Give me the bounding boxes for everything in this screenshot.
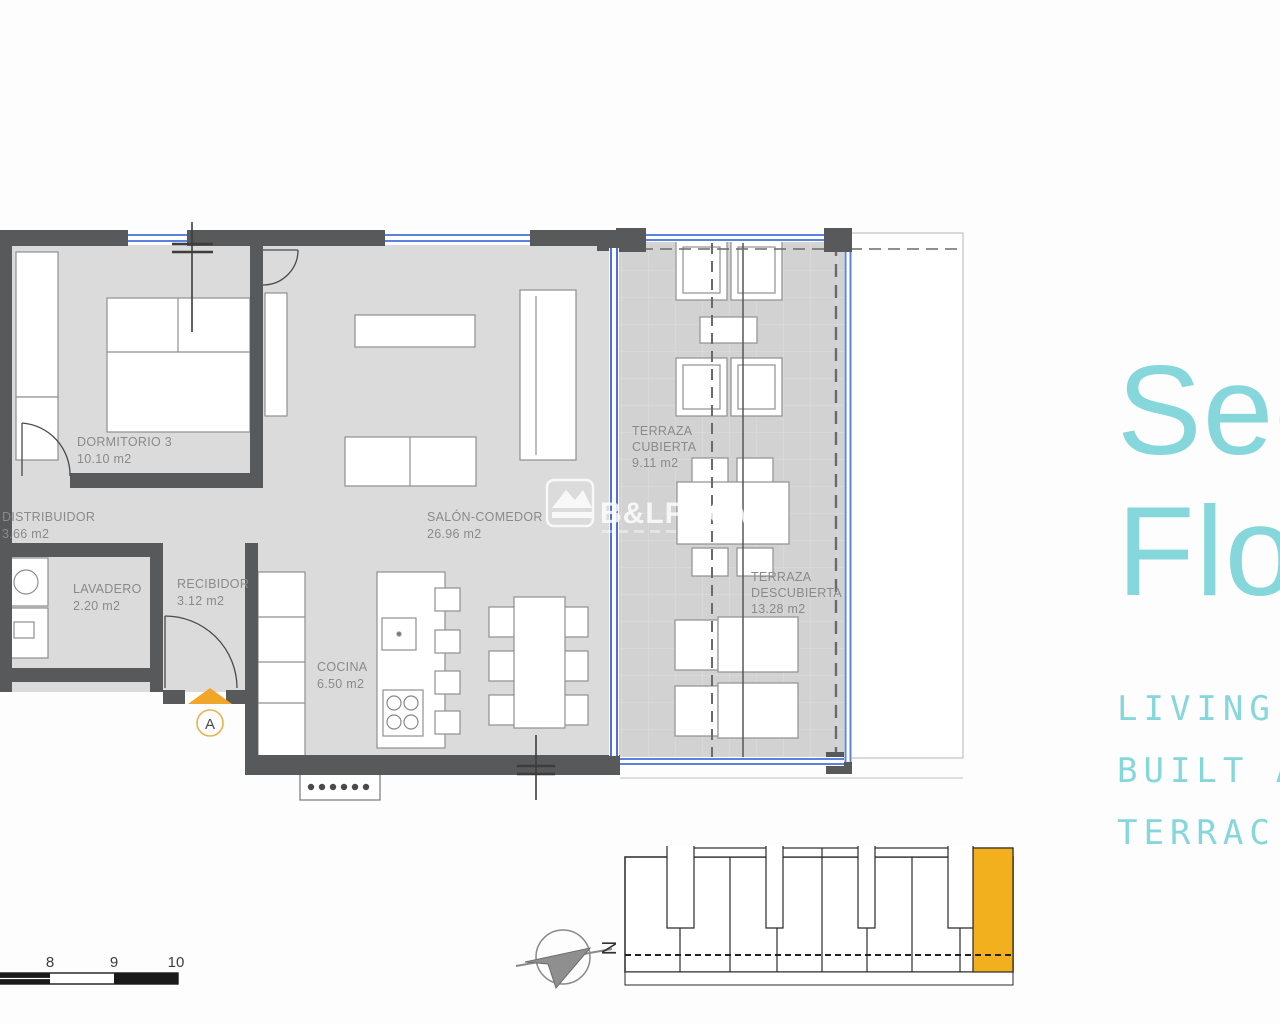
svg-text:TERRAZA: TERRAZA (632, 424, 693, 438)
key-plan (625, 846, 1013, 985)
svg-text:RECIBIDOR: RECIBIDOR (177, 577, 249, 591)
svg-text:26.96 m2: 26.96 m2 (427, 527, 482, 541)
svg-text:LAVADERO: LAVADERO (73, 582, 142, 596)
entrance-marker: A (188, 688, 232, 736)
floor-title-line-1: Sec (1117, 340, 1280, 481)
marketing-panel: Sec Flo LIVING BUILT A TERRAC (1117, 340, 1280, 622)
dining-set (489, 597, 588, 728)
entry-step (300, 774, 380, 800)
console-table (355, 315, 475, 347)
svg-text:6.50 m2: 6.50 m2 (317, 677, 364, 691)
svg-text:9.11 m2: 9.11 m2 (632, 456, 678, 470)
svg-text:8: 8 (46, 954, 54, 971)
highlighted-unit (973, 848, 1013, 972)
svg-text:CUBIERTA: CUBIERTA (632, 440, 697, 454)
svg-text:B&LPROMO: B&LPROMO (600, 497, 783, 530)
svg-text:SALÓN-COMEDOR: SALÓN-COMEDOR (427, 509, 543, 524)
svg-text:9: 9 (110, 954, 118, 971)
floor-caption: LIVING BUILT A TERRAC (1117, 678, 1280, 864)
floor-title-line-2: Flo (1117, 481, 1280, 622)
caption-line-terrace: TERRAC (1117, 802, 1280, 864)
svg-text:10.10 m2: 10.10 m2 (77, 452, 132, 466)
caption-line-built: BUILT A (1117, 740, 1280, 802)
svg-text:3.66 m2: 3.66 m2 (2, 527, 49, 541)
coffee-table (345, 437, 476, 486)
bed (107, 298, 250, 432)
svg-text:TERRAZA: TERRAZA (751, 570, 812, 584)
floor-title: Sec Flo (1117, 340, 1280, 622)
kitchen-counter (258, 572, 305, 762)
floor-plan: DORMITORIO 3 10.10 m2 DISTRIBUIDOR 3.66 … (0, 0, 1015, 1024)
svg-text:DORMITORIO 3: DORMITORIO 3 (77, 435, 172, 449)
floorplan-page: DORMITORIO 3 10.10 m2 DISTRIBUIDOR 3.66 … (0, 0, 1280, 1024)
scale-bar: 8 9 10 (0, 954, 184, 984)
svg-text:10: 10 (168, 954, 185, 971)
svg-text:13.28 m2: 13.28 m2 (751, 602, 806, 616)
svg-text:A: A (205, 716, 215, 733)
tv-unit (265, 293, 287, 416)
svg-text:N: N (597, 941, 619, 955)
svg-text:COCINA: COCINA (317, 660, 368, 674)
svg-text:2.20 m2: 2.20 m2 (73, 599, 120, 613)
svg-text:DISTRIBUIDOR: DISTRIBUIDOR (2, 510, 95, 524)
north-arrow-icon: N (516, 930, 619, 988)
svg-text:DESCUBIERTA: DESCUBIERTA (751, 586, 842, 600)
caption-line-living: LIVING (1117, 678, 1280, 740)
svg-text:3.12 m2: 3.12 m2 (177, 594, 224, 608)
sofa (520, 290, 576, 460)
